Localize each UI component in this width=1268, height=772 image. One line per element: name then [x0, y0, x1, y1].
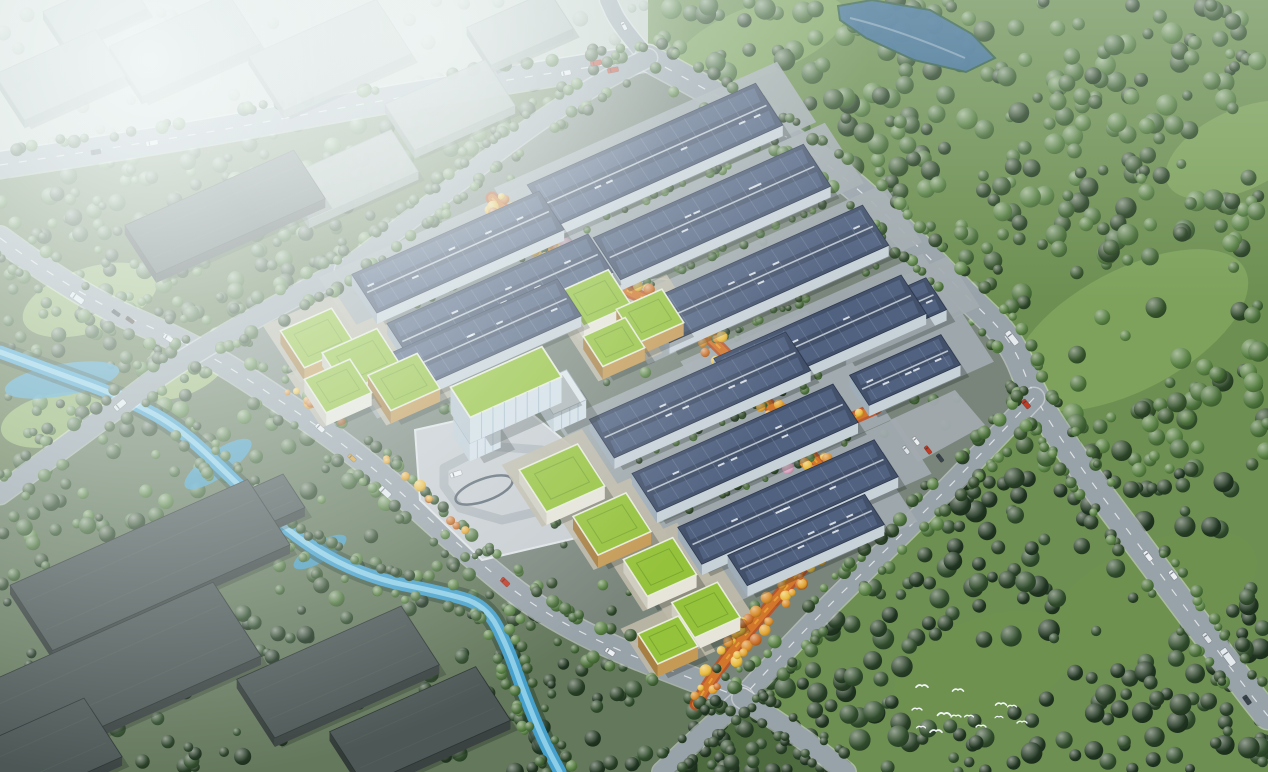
sun-haze-overlay	[0, 0, 1268, 772]
atmospheric-haze	[0, 0, 1268, 300]
aerial-rendering	[0, 0, 1268, 772]
scene-svg	[0, 0, 1268, 772]
